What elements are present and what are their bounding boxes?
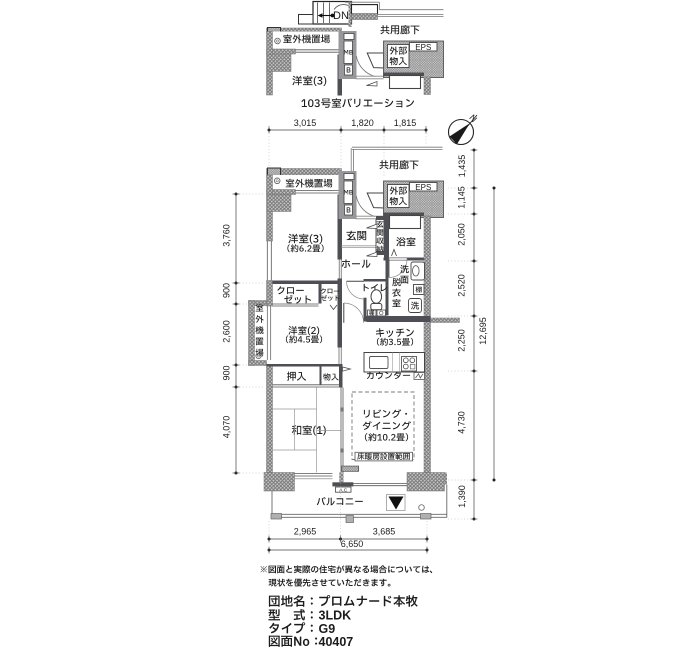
svg-text:4,070: 4,070 xyxy=(222,416,232,439)
svg-text:EPS: EPS xyxy=(415,183,431,192)
svg-text:900: 900 xyxy=(222,283,232,298)
svg-text:40407: 40407 xyxy=(319,635,354,649)
svg-text:900: 900 xyxy=(222,365,232,380)
svg-text:3,760: 3,760 xyxy=(222,224,232,247)
svg-text:6,650: 6,650 xyxy=(341,539,364,549)
svg-text:G9: G9 xyxy=(319,622,336,636)
svg-text:2,520: 2,520 xyxy=(457,274,467,297)
svg-text:EPS: EPS xyxy=(415,43,431,52)
svg-text:1,820: 1,820 xyxy=(351,118,374,128)
svg-text:DN: DN xyxy=(333,10,349,22)
svg-text:2,250: 2,250 xyxy=(457,329,467,352)
svg-text:1,435: 1,435 xyxy=(457,155,467,178)
svg-text:4,730: 4,730 xyxy=(457,411,467,434)
svg-text:3,015: 3,015 xyxy=(294,118,317,128)
svg-text:3LDK: 3LDK xyxy=(319,609,352,623)
svg-text:1,390: 1,390 xyxy=(457,485,467,508)
svg-text:1,815: 1,815 xyxy=(394,118,417,128)
svg-text:2,965: 2,965 xyxy=(294,527,317,537)
svg-text:3,685: 3,685 xyxy=(373,527,396,537)
svg-text:2,600: 2,600 xyxy=(222,320,232,343)
svg-text:12,695: 12,695 xyxy=(478,317,488,345)
svg-text:2,050: 2,050 xyxy=(457,223,467,246)
svg-text:1,145: 1,145 xyxy=(457,186,467,209)
